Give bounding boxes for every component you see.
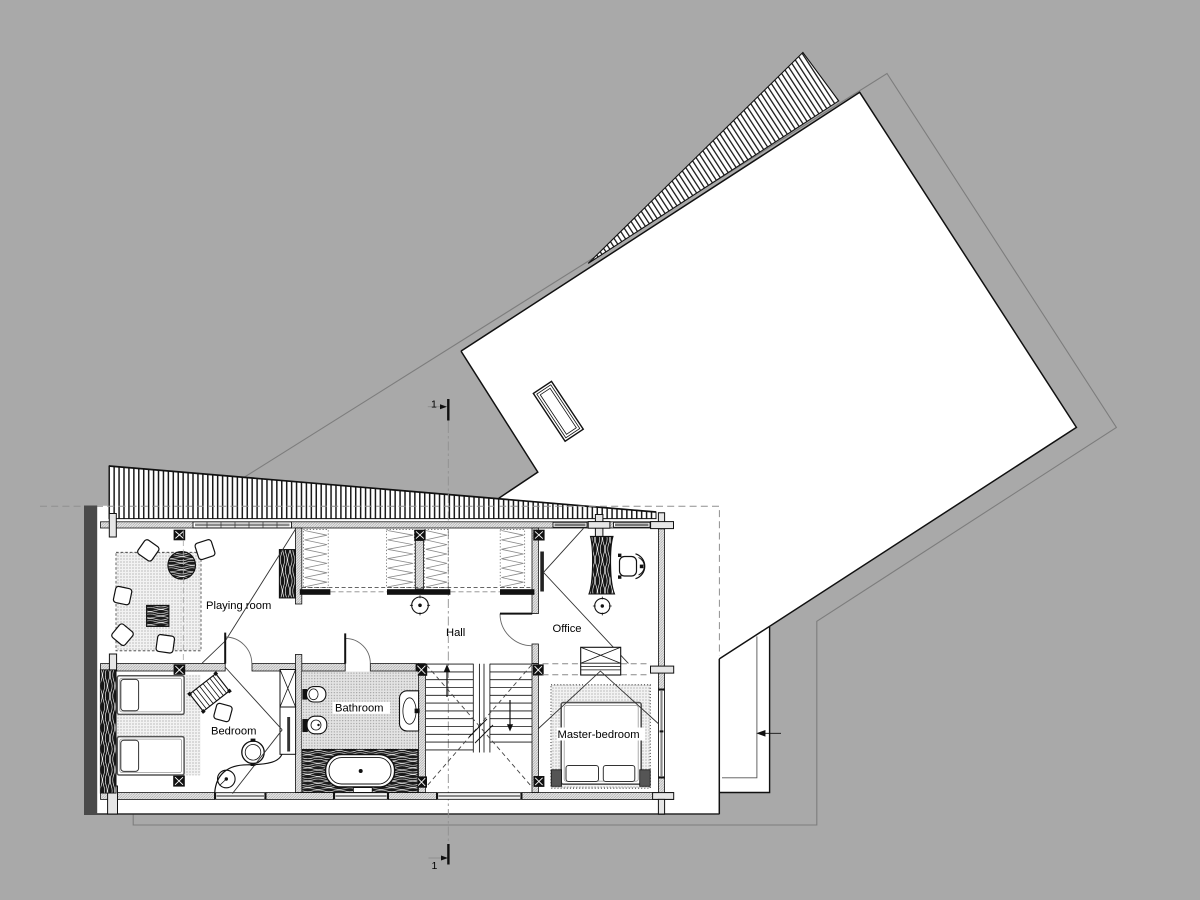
- svg-text:Master-bedroom: Master-bedroom: [558, 729, 640, 741]
- svg-text:1: 1: [432, 860, 438, 872]
- svg-text:1: 1: [431, 399, 437, 411]
- svg-text:Playing room: Playing room: [206, 600, 271, 612]
- svg-text:Office: Office: [553, 623, 582, 635]
- svg-text:Hall: Hall: [446, 627, 465, 639]
- svg-text:Bathroom: Bathroom: [335, 703, 384, 715]
- svg-text:Bedroom: Bedroom: [211, 725, 256, 737]
